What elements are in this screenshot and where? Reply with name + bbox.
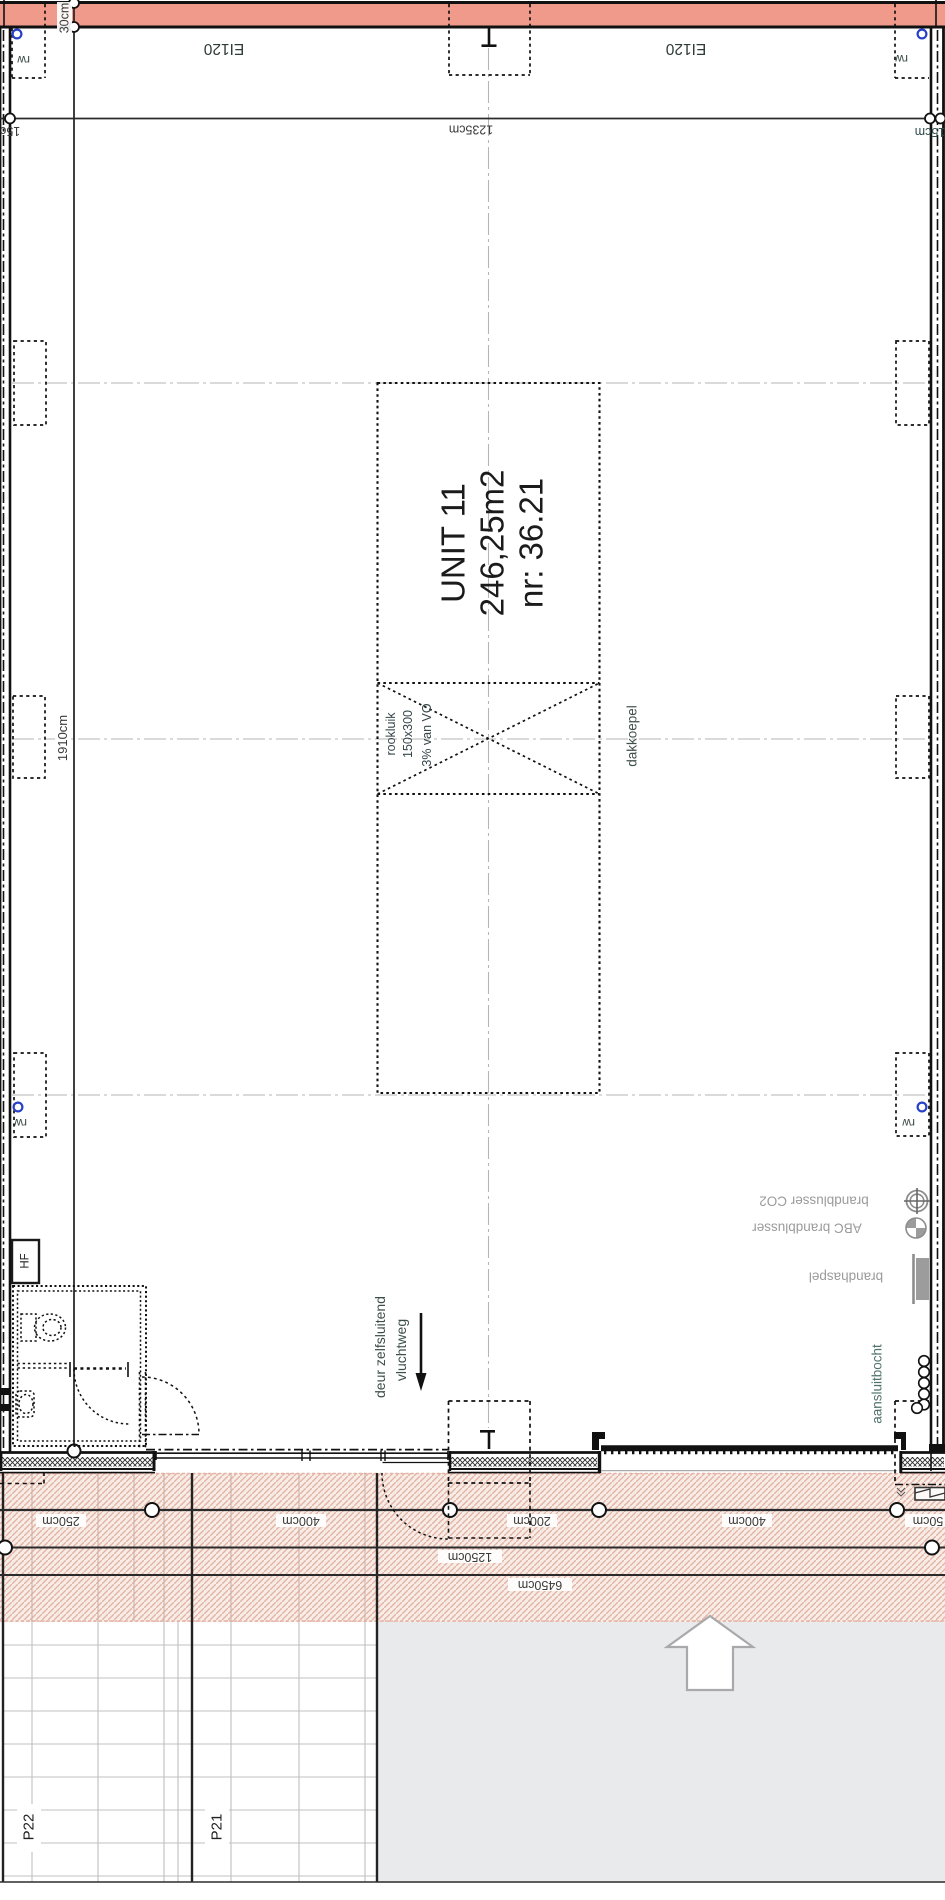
svg-text:rw: rw bbox=[14, 1116, 27, 1130]
svg-text:EI120: EI120 bbox=[203, 40, 244, 57]
svg-text:200cm: 200cm bbox=[513, 1514, 551, 1528]
svg-text:vluchtweg: vluchtweg bbox=[393, 1319, 409, 1381]
svg-text:brandblusser CO2: brandblusser CO2 bbox=[759, 1194, 869, 1209]
svg-text:30cm: 30cm bbox=[58, 3, 72, 34]
svg-text:400cm: 400cm bbox=[728, 1514, 766, 1528]
svg-text:1235cm: 1235cm bbox=[449, 123, 493, 137]
svg-text:246,25m2: 246,25m2 bbox=[474, 470, 511, 617]
svg-text:1250cm: 1250cm bbox=[448, 1550, 492, 1564]
svg-text:1910cm: 1910cm bbox=[55, 715, 70, 761]
svg-text:rw: rw bbox=[17, 53, 30, 67]
svg-text:3% van VO: 3% van VO bbox=[420, 703, 434, 767]
svg-text:rw: rw bbox=[895, 52, 908, 66]
svg-text:6450cm: 6450cm bbox=[518, 1578, 562, 1592]
svg-text:400cm: 400cm bbox=[282, 1514, 320, 1528]
svg-text:EI120: EI120 bbox=[665, 40, 706, 57]
svg-text:250cm: 250cm bbox=[42, 1514, 80, 1528]
svg-text:rookluik: rookluik bbox=[384, 712, 398, 756]
svg-text:ABC brandblusser: ABC brandblusser bbox=[752, 1221, 862, 1236]
svg-text:P22: P22 bbox=[21, 1814, 38, 1841]
svg-text:dakkoepel: dakkoepel bbox=[625, 705, 640, 767]
svg-text:P21: P21 bbox=[209, 1814, 226, 1841]
svg-text:15cm: 15cm bbox=[915, 125, 945, 139]
svg-text:150x300: 150x300 bbox=[401, 710, 415, 758]
svg-text:rw: rw bbox=[902, 1116, 915, 1130]
svg-text:deur zelfsluitend: deur zelfsluitend bbox=[372, 1296, 388, 1398]
svg-text:HF: HF bbox=[20, 1253, 32, 1268]
svg-text:nr: 36.21: nr: 36.21 bbox=[513, 478, 550, 608]
svg-text:UNIT 11: UNIT 11 bbox=[435, 483, 472, 603]
svg-text:aansluitbocht: aansluitbocht bbox=[870, 1344, 885, 1424]
svg-text:50cm: 50cm bbox=[913, 1514, 944, 1528]
svg-text:15cm: 15cm bbox=[0, 124, 20, 138]
svg-text:brandhaspel: brandhaspel bbox=[809, 1270, 883, 1285]
